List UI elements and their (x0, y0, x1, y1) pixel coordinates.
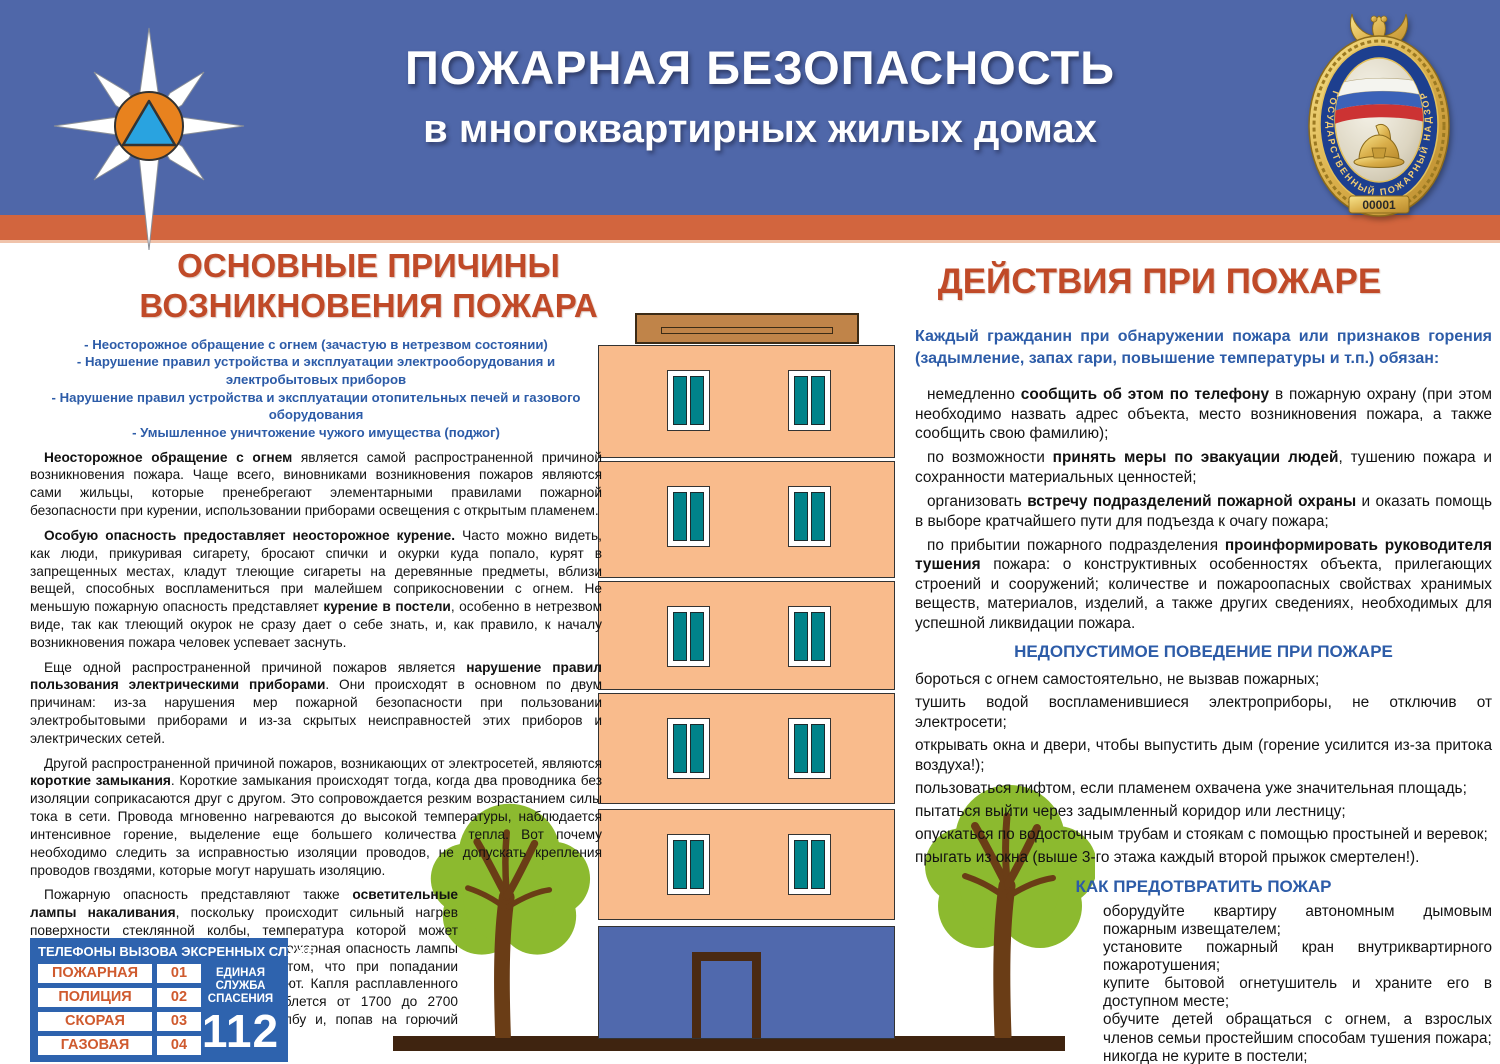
forbidden-item: тушить водой воспламенившиеся электропри… (915, 693, 1492, 733)
gpn-badge-icon: ГОСУДАРСТВЕННЫЙ ПОЖАРНЫЙ НАДЗОР 00001 (1303, 8, 1455, 220)
service-name: ПОЛИЦИЯ (38, 988, 152, 1007)
poster-title: ПОЖАРНАЯ БЕЗОПАСНОСТЬ в многоквартирных … (380, 40, 1140, 152)
title-line1: ПОЖАРНАЯ БЕЗОПАСНОСТЬ (380, 40, 1140, 95)
forbidden-item: опускаться по водосточным трубам и стояк… (915, 825, 1492, 845)
entrance-door (692, 952, 761, 1038)
apartment-building-illustration (598, 313, 895, 1039)
forbidden-item: открывать окна и двери, чтобы выпустить … (915, 736, 1492, 776)
phones-table: ПОЖАРНАЯ 01 ПОЛИЦИЯ 02 СКОРАЯ 03 ГАЗОВАЯ… (38, 964, 201, 1055)
window (788, 834, 831, 895)
causes-list: - Неосторожное обращение с огнем (зачаст… (30, 336, 602, 442)
paragraph: Еще одной распространенной причиной пожа… (30, 659, 602, 748)
forbidden-item: бороться с огнем самостоятельно, не вызв… (915, 670, 1492, 690)
causes-heading-line1: ОСНОВНЫЕ ПРИЧИНЫ (135, 246, 602, 286)
building-floor (598, 461, 895, 578)
window (788, 486, 831, 547)
prevent-item: установите пожарный кран внутриквартирно… (1103, 939, 1492, 975)
window (667, 370, 710, 431)
causes-section: ОСНОВНЫЕ ПРИЧИНЫ ВОЗНИКНОВЕНИЯ ПОЖАРА - … (30, 246, 602, 1047)
window (788, 718, 831, 779)
service-name: ПОЖАРНАЯ (38, 964, 152, 983)
building-floor (598, 581, 895, 690)
building-roof (635, 313, 859, 344)
service-number: 01 (157, 964, 201, 983)
service-name: ГАЗОВАЯ (38, 1036, 152, 1055)
actions-heading: ДЕЙСТВИЯ ПРИ ПОЖАРЕ (915, 262, 1492, 302)
cause-item: - Неосторожное обращение с огнем (зачаст… (30, 336, 602, 354)
paragraph: по возможности принять меры по эвакуации… (915, 448, 1492, 487)
paragraph: организовать встречу подразделений пожар… (915, 492, 1492, 531)
forbidden-item: пользоваться лифтом, если пламенем охвач… (915, 779, 1492, 799)
phones-title: ТЕЛЕФОНЫ ВЫЗОВА ЭКСРЕННЫХ СЛУЖБ (38, 944, 280, 959)
prevent-item: никогда не курите в постели; (1103, 1048, 1492, 1064)
building-floor (598, 345, 895, 458)
prevent-heading: КАК ПРЕДОТВРАТИТЬ ПОЖАР (915, 877, 1492, 897)
building-ground-floor (598, 926, 895, 1039)
prevent-item: обучите детей обращаться с огнем, а взро… (1103, 1011, 1492, 1047)
forbidden-item: прыгать из окна (выше 3-го этажа каждый … (915, 848, 1492, 868)
prevent-item: оборудуйте квартиру автономным дымовым п… (1103, 903, 1492, 939)
causes-heading: ОСНОВНЫЕ ПРИЧИНЫ ВОЗНИКНОВЕНИЯ ПОЖАРА (30, 246, 602, 327)
cause-item: - Нарушение правил устройства и эксплуат… (30, 389, 602, 424)
cause-item: - Умышленное уничтожение чужого имуществ… (30, 424, 602, 442)
service-number: 02 (157, 988, 201, 1007)
building-floor (598, 693, 895, 804)
window (788, 370, 831, 431)
building-floor (598, 809, 895, 920)
mchs-star-icon (52, 26, 248, 252)
paragraph: немедленно сообщить об этом по телефону … (915, 385, 1492, 443)
unified-service-line1: ЕДИНАЯ СЛУЖБА (201, 967, 280, 993)
forbidden-heading: НЕДОПУСТИМОЕ ПОВЕДЕНИЕ ПРИ ПОЖАРЕ (915, 642, 1492, 662)
actions-intro: Каждый гражданин при обнаружении пожара … (915, 326, 1492, 369)
forbidden-item: пытаться выйти через задымленный коридор… (915, 802, 1492, 822)
unified-rescue-service: ЕДИНАЯ СЛУЖБА СПАСЕНИЯ 112 (201, 964, 280, 1055)
window (667, 486, 710, 547)
service-number: 03 (157, 1012, 201, 1031)
window (788, 606, 831, 667)
prevent-list: оборудуйте квартиру автономным дымовым п… (1103, 903, 1492, 1064)
window (667, 606, 710, 667)
window (667, 718, 710, 779)
causes-heading-line2: ВОЗНИКНОВЕНИЯ ПОЖАРА (135, 286, 602, 326)
number-112: 112 (201, 1010, 280, 1054)
service-name: СКОРАЯ (38, 1012, 152, 1031)
paragraph: по прибытии пожарного подразделения прои… (915, 536, 1492, 633)
actions-section: ДЕЙСТВИЯ ПРИ ПОЖАРЕ Каждый гражданин при… (915, 262, 1492, 1064)
emergency-phones-box: ТЕЛЕФОНЫ ВЫЗОВА ЭКСРЕННЫХ СЛУЖБ ПОЖАРНАЯ… (30, 938, 288, 1062)
roof-trim (661, 327, 833, 334)
window (667, 834, 710, 895)
paragraph: Другой распространенной причиной пожаров… (30, 755, 602, 880)
title-line2: в многоквартирных жилых домах (380, 107, 1140, 152)
badge-number: 00001 (1362, 198, 1396, 212)
fire-safety-poster: ПОЖАРНАЯ БЕЗОПАСНОСТЬ в многоквартирных … (0, 0, 1500, 1064)
paragraph: Неосторожное обращение с огнем является … (30, 449, 602, 520)
cause-item: - Нарушение правил устройства и эксплуат… (30, 353, 602, 388)
service-number: 04 (157, 1036, 201, 1055)
paragraph: Особую опасность предоставляет неосторож… (30, 527, 602, 652)
prevent-item: купите бытовой огнетушитель и храните ег… (1103, 975, 1492, 1011)
